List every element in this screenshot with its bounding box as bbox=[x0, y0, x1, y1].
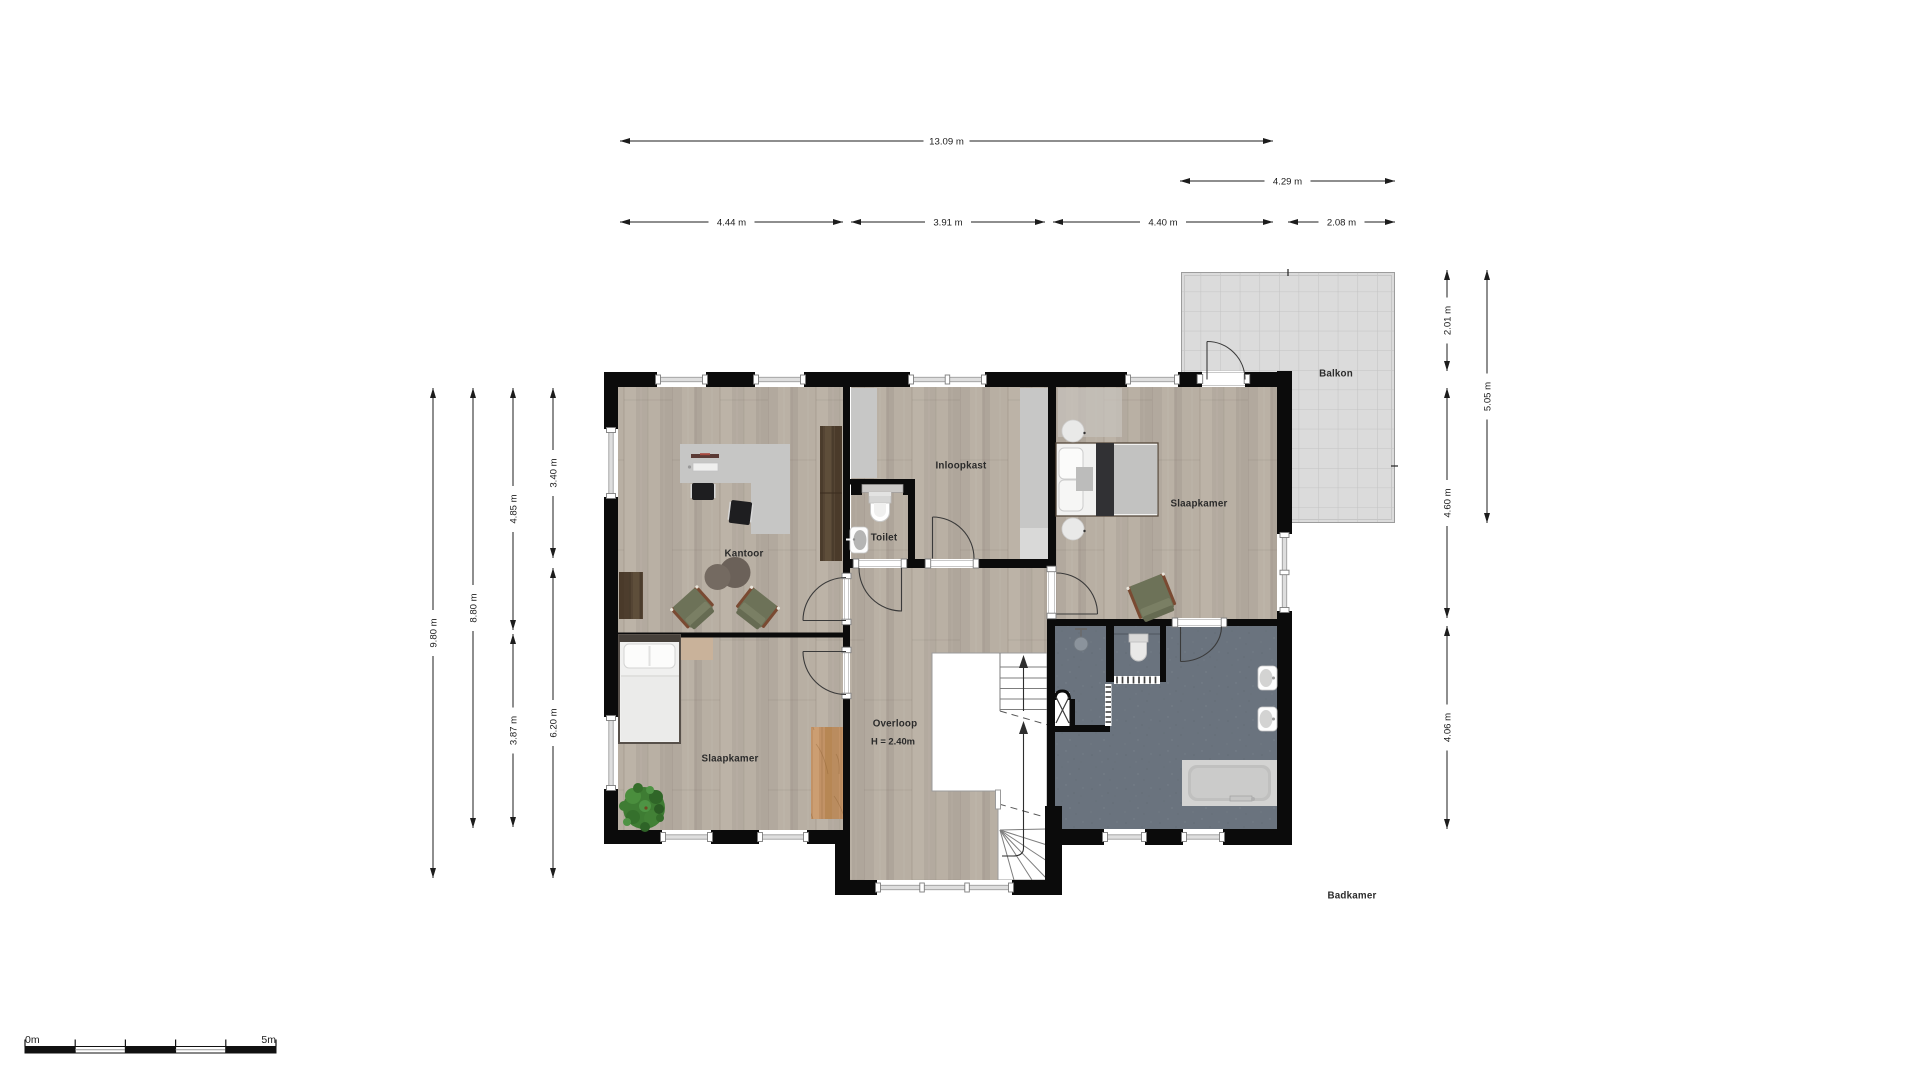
svg-text:Kantoor: Kantoor bbox=[725, 549, 764, 560]
svg-text:H = 2.40m: H = 2.40m bbox=[871, 736, 915, 747]
svg-text:4.60 m: 4.60 m bbox=[1442, 488, 1453, 517]
svg-text:9.80 m: 9.80 m bbox=[428, 618, 439, 647]
svg-text:5.05 m: 5.05 m bbox=[1482, 382, 1493, 411]
svg-text:4.44 m: 4.44 m bbox=[717, 217, 746, 228]
svg-text:Balkon: Balkon bbox=[1319, 369, 1353, 380]
svg-text:3.87 m: 3.87 m bbox=[508, 716, 519, 745]
svg-text:4.29 m: 4.29 m bbox=[1273, 176, 1302, 187]
svg-text:4.85 m: 4.85 m bbox=[508, 494, 519, 523]
svg-text:Badkamer: Badkamer bbox=[1328, 891, 1377, 902]
svg-text:4.06 m: 4.06 m bbox=[1442, 713, 1453, 742]
svg-text:4.40 m: 4.40 m bbox=[1148, 217, 1177, 228]
svg-text:0m: 0m bbox=[25, 1034, 40, 1046]
svg-text:Slaapkamer: Slaapkamer bbox=[701, 754, 758, 765]
svg-text:5m: 5m bbox=[261, 1034, 276, 1046]
svg-text:2.01 m: 2.01 m bbox=[1442, 306, 1453, 335]
svg-text:8.80 m: 8.80 m bbox=[468, 593, 479, 622]
svg-text:3.40 m: 3.40 m bbox=[548, 458, 559, 487]
svg-text:13.09 m: 13.09 m bbox=[929, 136, 964, 147]
svg-text:Inloopkast: Inloopkast bbox=[936, 461, 988, 472]
svg-text:Toilet: Toilet bbox=[871, 533, 898, 544]
svg-text:2.08 m: 2.08 m bbox=[1327, 217, 1356, 228]
svg-text:6.20 m: 6.20 m bbox=[548, 708, 559, 737]
svg-text:Overloop: Overloop bbox=[873, 719, 918, 730]
svg-text:3.91 m: 3.91 m bbox=[933, 217, 962, 228]
svg-text:Slaapkamer: Slaapkamer bbox=[1170, 499, 1227, 510]
